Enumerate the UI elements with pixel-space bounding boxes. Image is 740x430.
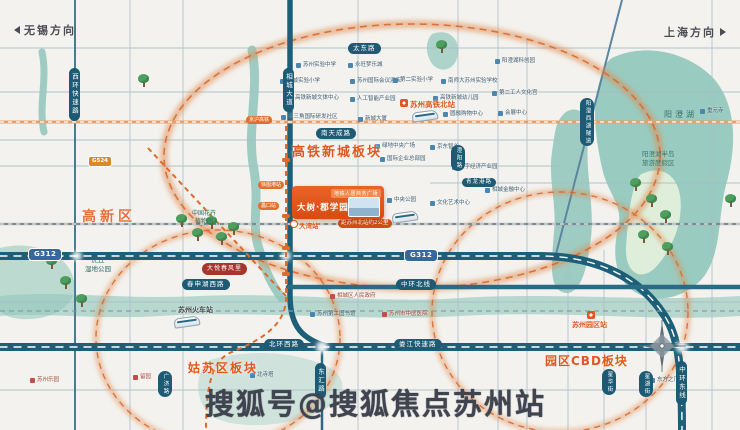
tree-icon [630,178,641,191]
lake-peninsula-label: 阳澄湖半岛 旅游度假区 [642,150,675,168]
compass-icon [638,318,686,374]
road-label-qinglonggang: 青龙港路 [462,178,496,187]
huqiu-line1: 虎丘 [76,256,120,265]
building-icon [441,79,446,84]
poi: 文化艺术中心 [430,200,470,207]
project-photo-thumbnail [348,197,380,217]
building-icon [310,312,315,317]
district-cbd: 园区CBD板块 [545,352,628,369]
poi: 高铁新城文体中心 [288,95,339,102]
road-label-loujiang: 娄江快速路 [394,339,442,350]
tree-icon [646,194,657,207]
tree-icon [662,242,673,255]
road-label-chengyang: 澄阳路 [451,145,465,171]
poi: 相城金融中心 [485,187,525,194]
g312-shield-east: G312 [404,249,438,262]
building-icon [350,97,355,102]
building-icon [281,115,286,120]
arrow-left-icon [14,26,20,34]
building-icon [296,63,301,68]
direction-shanghai: 上海方向 [664,24,726,40]
tree-icon [638,230,649,243]
station-xutugang: 徐图港站 [258,181,284,189]
poi: 会展中心 [498,110,527,117]
arrow-right-icon [720,28,726,36]
poi-hospital: 苏州市中医医院 [382,311,428,318]
station-badge-icon [587,311,595,319]
g312-shield-west: G312 [28,248,62,261]
poi-landmark-joycity: 大悦春风里 [202,263,247,275]
building-icon [430,201,435,206]
metro-station-icon [290,220,298,228]
poi: 人工智能产业园 [350,96,396,103]
temple-icon [700,109,705,114]
poi: 南师大苏州实验学校 [441,78,498,85]
poi: 苏州第二图书馆 [310,311,356,318]
poi: 第二工人文化宫 [492,90,538,97]
station-railway: 苏州火车站 [178,305,213,315]
road-label-xinghua: 星华街 [602,369,616,395]
direction-wuxi: 无锡方向 [14,22,76,38]
district-gaoxin: 高新区 [82,206,136,226]
building-icon [348,63,353,68]
building-icon [358,117,363,122]
poi: 东方之门 [650,377,679,384]
metro-station-tick [282,214,290,218]
poi-government: 相城区人民政府 [330,293,376,300]
poi: 国际企业总部园 [380,156,426,163]
station-likou: 蠡口站 [258,202,279,210]
road-label-guangji: 广济路 [158,371,172,397]
station-north: 苏州高铁北站 [410,99,455,110]
park-icon [30,378,35,383]
poi: 苏州实验中学 [296,62,336,69]
poi-garden: 留园 [133,374,151,381]
road-label-zhonghuanbei: 中环北线 [396,279,436,290]
building-icon [430,145,435,150]
road-label-xinghu: 星湖街 [639,371,653,397]
tree-icon [216,232,227,245]
garden-icon [133,375,138,380]
building-icon [485,188,490,193]
station-yuanqu: 苏州园区站 [572,320,607,330]
tree-icon [228,222,239,235]
building-icon [492,91,497,96]
project-distance-pill: 距苏州北站约2公里 [338,219,392,228]
poi: 圆融购物中心 [443,111,483,118]
district-gaotie: 高铁新城板块 [292,141,382,160]
tree-icon [138,74,149,87]
district-gusu: 姑苏区板块 [188,359,258,376]
poi-amusement: 苏州乐园 [30,377,59,384]
flower-line2: 植物园 [184,218,224,226]
road-label-xiangchengdadao: 相城大道 [283,68,294,112]
direction-wuxi-label: 无锡方向 [24,22,76,38]
station-dawan: 大湾站 [299,220,319,230]
direction-shanghai-label: 上海方向 [664,24,716,40]
watermark-sohu: 搜狐号@搜狐焦点苏州站 [205,381,546,423]
tree-icon [660,210,671,223]
road-label-beihuanxi: 北环西路 [264,339,304,350]
tree-icon [725,194,736,207]
poi: 第二实验小学 [393,77,433,84]
map-canvas: 无锡方向 上海方向 高新区 高铁新城板块 姑苏区板块 园区CBD板块 太东路 南… [0,0,740,430]
project-name: 大树·郡学园 [297,201,349,213]
poi: 永旺梦乐城 [348,62,383,69]
building-icon [498,111,503,116]
poi: 长三角国际研发社区 [281,114,338,121]
rail-label-jinghu: 京沪高铁 [246,116,272,124]
building-icon [495,59,500,64]
tree-icon [76,294,87,307]
metro-station-tick [282,246,290,250]
hospital-icon [382,312,387,317]
tree-icon [60,276,71,289]
government-icon [330,294,335,299]
tree-icon [192,228,203,241]
tree-icon [436,40,447,53]
project-card: 地铁人居商务广场 大树·郡学园 [292,186,384,219]
g524-shield: G524 [88,156,112,167]
road-label-chunshenhuxi: 春申湖西路 [182,279,230,290]
peninsula-line2: 旅游度假区 [642,159,675,168]
poi: 中央公园 [387,197,416,204]
road-label-yangcheng-tunnel: 阳澄西湖隧道 [580,98,594,146]
road-label-xihuan: 西环快速路 [69,68,80,121]
lake-yangchenghu-label: 阳澄湖 [664,109,697,120]
building-icon [387,198,392,203]
metro-station-tick [282,272,290,276]
peninsula-line1: 阳澄湖半岛 [642,150,675,159]
poi: 新城大厦 [358,116,387,123]
building-icon [350,79,355,84]
park-flower-label: 中国花卉 植物园 [184,210,224,227]
building-icon [443,112,448,117]
park-huqiu-label: 虎丘 湿地公园 [76,256,120,274]
road-label-nantiancheng: 南天成路 [316,128,356,139]
road-label-taidong: 太东路 [348,43,381,54]
poi: 阳澄湖科创园 [495,58,535,65]
metro-station-tick [282,158,290,162]
poi: 重元寺 [700,108,724,115]
station-badge-icon [400,99,408,107]
huqiu-line2: 湿地公园 [76,265,120,274]
building-icon [393,78,398,83]
